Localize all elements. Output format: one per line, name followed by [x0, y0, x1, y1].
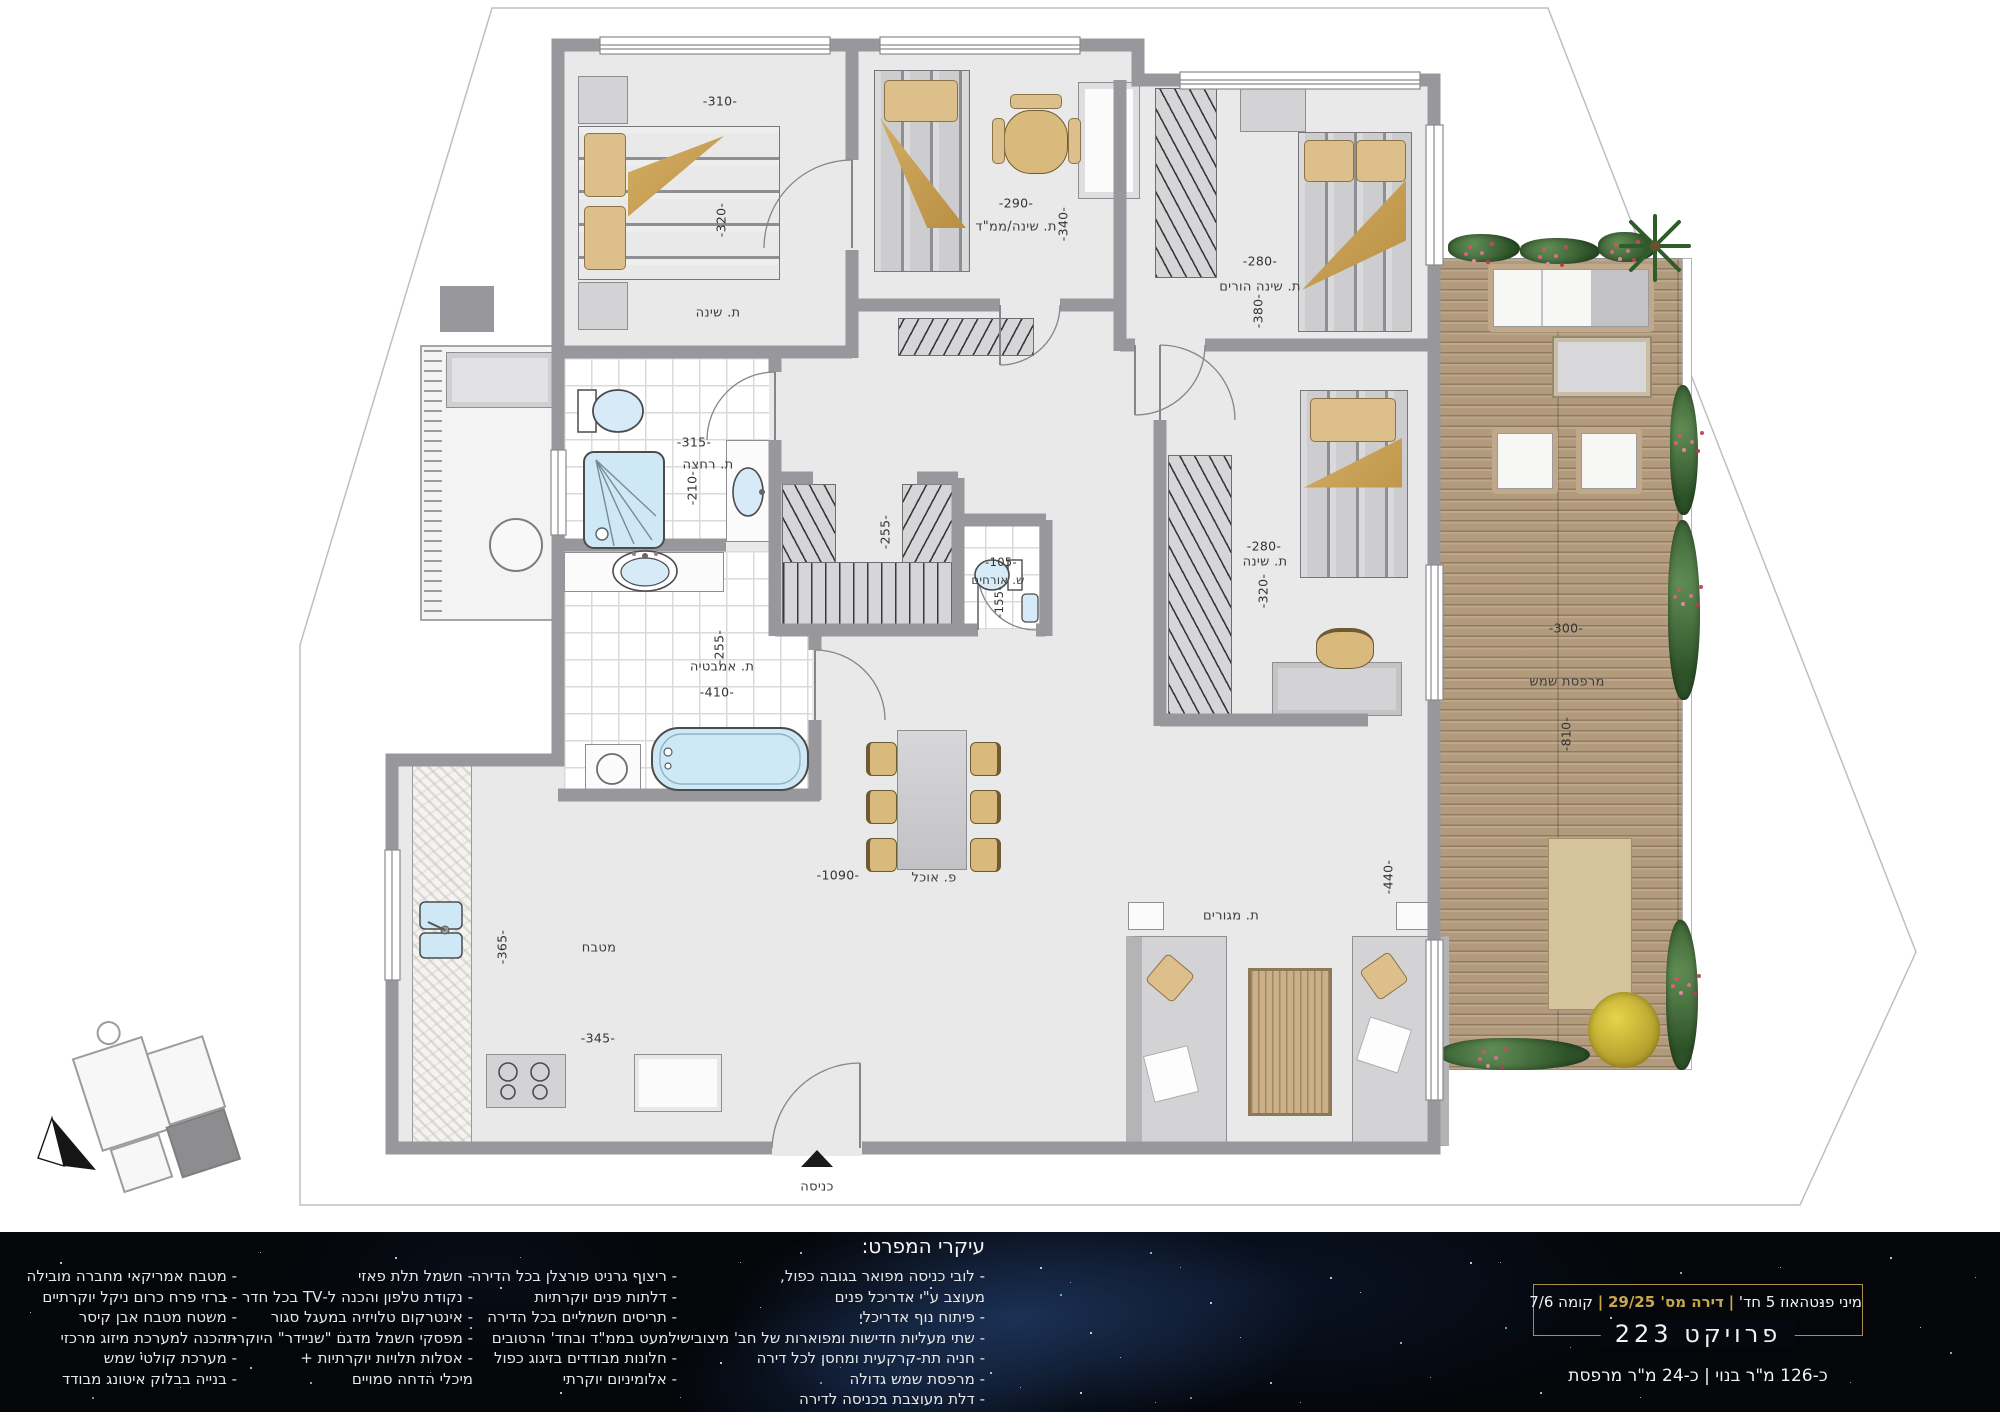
- wardrobe: [1168, 455, 1232, 715]
- dresser: [1240, 84, 1306, 132]
- spec-column-2: - ריצוף גרניט פורצלן בכל הדירה- דלתות פנ…: [471, 1266, 677, 1389]
- spec-line: - תריסים חשמליים בכל הדירה: [471, 1307, 677, 1328]
- desk-chair: [1316, 628, 1374, 669]
- spec-line: - חלונות מבודדים בזיגוג כפול: [471, 1348, 677, 1369]
- spec-line: - פיתוח נוף אדריכלי: [677, 1307, 985, 1328]
- dim-living-height: -440-: [1381, 860, 1396, 894]
- louver-grill: [424, 350, 442, 612]
- rug: [1248, 968, 1332, 1116]
- dim-parents-height: -380-: [1251, 294, 1266, 328]
- bottom-info-band: עיקרי המפרט: - לובי כניסה מפואר בגובה כפ…: [0, 1232, 2000, 1412]
- plant: [1666, 920, 1698, 1070]
- dim-shower-room-height: -210-: [685, 471, 700, 505]
- spec-line: - מרפסת שמש גדולה: [677, 1369, 985, 1390]
- unit-type: מיני פנטהאוז 5 חד': [1739, 1293, 1862, 1311]
- spec-line: - דלת מעוצבת בכניסה לדירה: [677, 1389, 985, 1410]
- label-entrance: כניסה: [800, 1180, 833, 1195]
- label-dining-name: פ. אוכל: [912, 871, 957, 886]
- pillow: [584, 133, 626, 197]
- dim-bathroom-width: -410-: [700, 685, 734, 700]
- nightstand: [578, 76, 628, 124]
- spec-column-1: - לובי כניסה מפואר בגובה כפול,מעוצב ע"י …: [677, 1266, 985, 1410]
- dining-chair: [866, 838, 897, 872]
- dim-parents-width: -280-: [1243, 254, 1277, 269]
- spec-line: - ברזי פרח כרום ניקל יוקרתיים: [27, 1287, 237, 1308]
- chair-arm: [992, 118, 1005, 164]
- label-parents-name: ת. שינה הורים: [1219, 280, 1301, 295]
- spec-line: - לובי כניסה מפואר בגובה כפול,: [677, 1266, 985, 1287]
- stars: [0, 1232, 2, 1234]
- wardrobe: [1155, 88, 1217, 278]
- dim-terrace-height: -810-: [1559, 717, 1574, 751]
- spec-line: - הכנה למערכת מיזוג מרכזי: [27, 1328, 237, 1349]
- spec-line: - משטח מטבח אבן קיסר: [27, 1307, 237, 1328]
- specs-title: עיקרי המפרט:: [862, 1234, 985, 1258]
- project-name: פרויקט 223: [1601, 1320, 1795, 1348]
- dim-bedroom1-height: -320-: [714, 203, 729, 237]
- pillow: [1310, 398, 1396, 442]
- spec-line: למעט בממ"ד ובחד' הרטובים: [471, 1328, 677, 1349]
- terrace-armchair: [1576, 428, 1642, 494]
- label-kitchen-name: מטבח: [582, 941, 616, 956]
- dim-bathroom-height: -255-: [712, 630, 727, 664]
- dim-mamad-height: -340-: [1056, 207, 1071, 241]
- kitchen-counter: [412, 762, 472, 1150]
- yellow-bush: [1588, 992, 1660, 1068]
- label-bedroom3-name: ת. שינה: [1243, 555, 1288, 570]
- pillow: [1356, 140, 1406, 182]
- spec-line: מעוצב ע"י אדריכל פנים: [677, 1287, 985, 1308]
- separator: |: [1598, 1293, 1603, 1311]
- spec-line: - אסלות תלויות יוקרתיות +: [223, 1348, 473, 1369]
- spec-line: - בנייה בבלוק איטונג מבודד: [27, 1369, 237, 1390]
- label-terrace-name: מרפסת שמש: [1529, 675, 1604, 690]
- shoe-rack: [898, 318, 1034, 356]
- side-table: [1396, 902, 1432, 930]
- dining-chair: [970, 838, 1001, 872]
- spec-line: מיכלי הדחה סמויים: [223, 1369, 473, 1390]
- plant: [1440, 1038, 1590, 1070]
- plant: [1670, 385, 1698, 515]
- plant: [1520, 238, 1600, 264]
- unit-number: דירה מס' 29/25: [1608, 1293, 1724, 1311]
- walkin-closet-bottom: [782, 562, 954, 626]
- dim-dining-width: -1090-: [817, 868, 860, 883]
- dining-chair: [866, 790, 897, 824]
- label-bedroom1-name: ת. שינה: [696, 306, 741, 321]
- spec-line: - שתי מעליות חדישות ומפוארות של חב' מיצו…: [677, 1328, 985, 1349]
- plant: [1448, 234, 1520, 262]
- separator: |: [1729, 1293, 1734, 1311]
- washing-machine: [585, 744, 641, 796]
- shaft-block: [440, 286, 494, 332]
- spec-line: - חניה תת-קרקעית ומחסן לכל דירה: [677, 1348, 985, 1369]
- side-table: [1128, 902, 1164, 930]
- dim-mamad-width: -290-: [999, 196, 1033, 211]
- dim-shower-room-width: -315-: [677, 435, 711, 450]
- desk: [1272, 662, 1402, 716]
- ac-unit: [446, 352, 554, 408]
- spec-line: - דלתות פנים יוקרתיות: [471, 1287, 677, 1308]
- vanity: [726, 440, 772, 542]
- spec-line: - מפסקי חשמל מדגם "שניידר" היוקרתי: [223, 1328, 473, 1349]
- chair-arm: [1068, 118, 1081, 164]
- label-guest-wc-name: ש. אורחים: [971, 573, 1024, 587]
- dim-guest-wc-height: -155-: [992, 586, 1006, 618]
- dining-chair: [970, 742, 1001, 776]
- unit-info-line: מיני פנטהאוז 5 חד' | דירה מס' 29/25 | קו…: [1534, 1293, 1862, 1311]
- label-mamad-name: ת. שינה/ממ"ד: [975, 220, 1056, 235]
- pillow: [1304, 140, 1354, 182]
- pillow: [584, 206, 626, 270]
- spec-line: - נקודת טלפון והכנה ל-TV בכל חדר: [223, 1287, 473, 1308]
- project-info: מיני פנטהאוז 5 חד' | דירה מס' 29/25 | קו…: [1533, 1284, 1863, 1336]
- dim-kitchen-height: -365-: [495, 930, 510, 964]
- entrance-arrow-icon: [801, 1150, 833, 1167]
- spec-column-3: - חשמל תלת פאזי- נקודת טלפון והכנה ל-TV …: [223, 1266, 473, 1389]
- desk: [1078, 82, 1140, 199]
- dim-bedroom3-height: -320-: [1256, 574, 1271, 608]
- desk-chair: [1004, 110, 1068, 174]
- vanity: [564, 552, 724, 592]
- label-living-name: ת. מגורים: [1203, 909, 1259, 924]
- area-info: כ-126 מ"ר בנוי | כ-24 מ"ר מרפסת: [1533, 1366, 1863, 1386]
- dim-walkin-closet: -255-: [878, 515, 893, 549]
- cooktop-island: [486, 1054, 566, 1108]
- dim-kitchen-width: -345-: [581, 1031, 615, 1046]
- spec-column-4: - מטבח אמריקאי מחברה מובילה- ברזי פרח כר…: [27, 1266, 237, 1389]
- spec-line: - ריצוף גרניט פורצלן בכל הדירה: [471, 1266, 677, 1287]
- plant: [1598, 232, 1656, 262]
- chair-back: [1010, 94, 1062, 109]
- spec-line: - אלומיניום יוקרתי: [471, 1369, 677, 1390]
- dim-guest-wc-width: -105-: [985, 555, 1017, 569]
- dining-chair: [866, 742, 897, 776]
- spec-line: - חשמל תלת פאזי: [223, 1266, 473, 1287]
- floorplan-page: ת. שינה -310- -320- ת. שינה/ממ"ד -290- -…: [0, 0, 2000, 1412]
- floor-number: קומה 7/6: [1529, 1293, 1593, 1311]
- dim-terrace-width: -300-: [1549, 621, 1583, 636]
- dim-bedroom3-width: -280-: [1247, 539, 1281, 554]
- dining-chair: [970, 790, 1001, 824]
- terrace-armchair: [1492, 428, 1558, 494]
- terrace-coffee-table: [1552, 336, 1652, 398]
- site-plan-underlay: [0, 0, 2000, 1412]
- terrace-sofa: [1488, 264, 1654, 332]
- pillow: [884, 80, 958, 122]
- dining-table: [897, 730, 967, 870]
- dim-bedroom1-width: -310-: [703, 94, 737, 109]
- spec-line: - מערכת קולטי שמש: [27, 1348, 237, 1369]
- terrace-dining-table: [1548, 838, 1632, 1010]
- spec-line: - אינטרקום טלויזיה במעגל סגור: [223, 1307, 473, 1328]
- spec-line: - מטבח אמריקאי מחברה מובילה: [27, 1266, 237, 1287]
- nightstand: [578, 282, 628, 330]
- kitchen-cabinet: [634, 1054, 722, 1112]
